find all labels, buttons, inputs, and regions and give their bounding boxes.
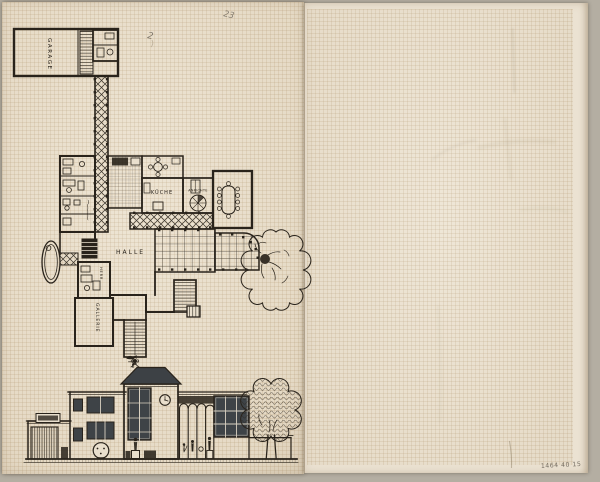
graph-paper-sheet-left: [2, 2, 304, 474]
scanned-drawing: GARAGE: [0, 0, 600, 482]
graph-paper-sheet-right: [304, 3, 588, 473]
graph-grid-area: [307, 9, 573, 465]
